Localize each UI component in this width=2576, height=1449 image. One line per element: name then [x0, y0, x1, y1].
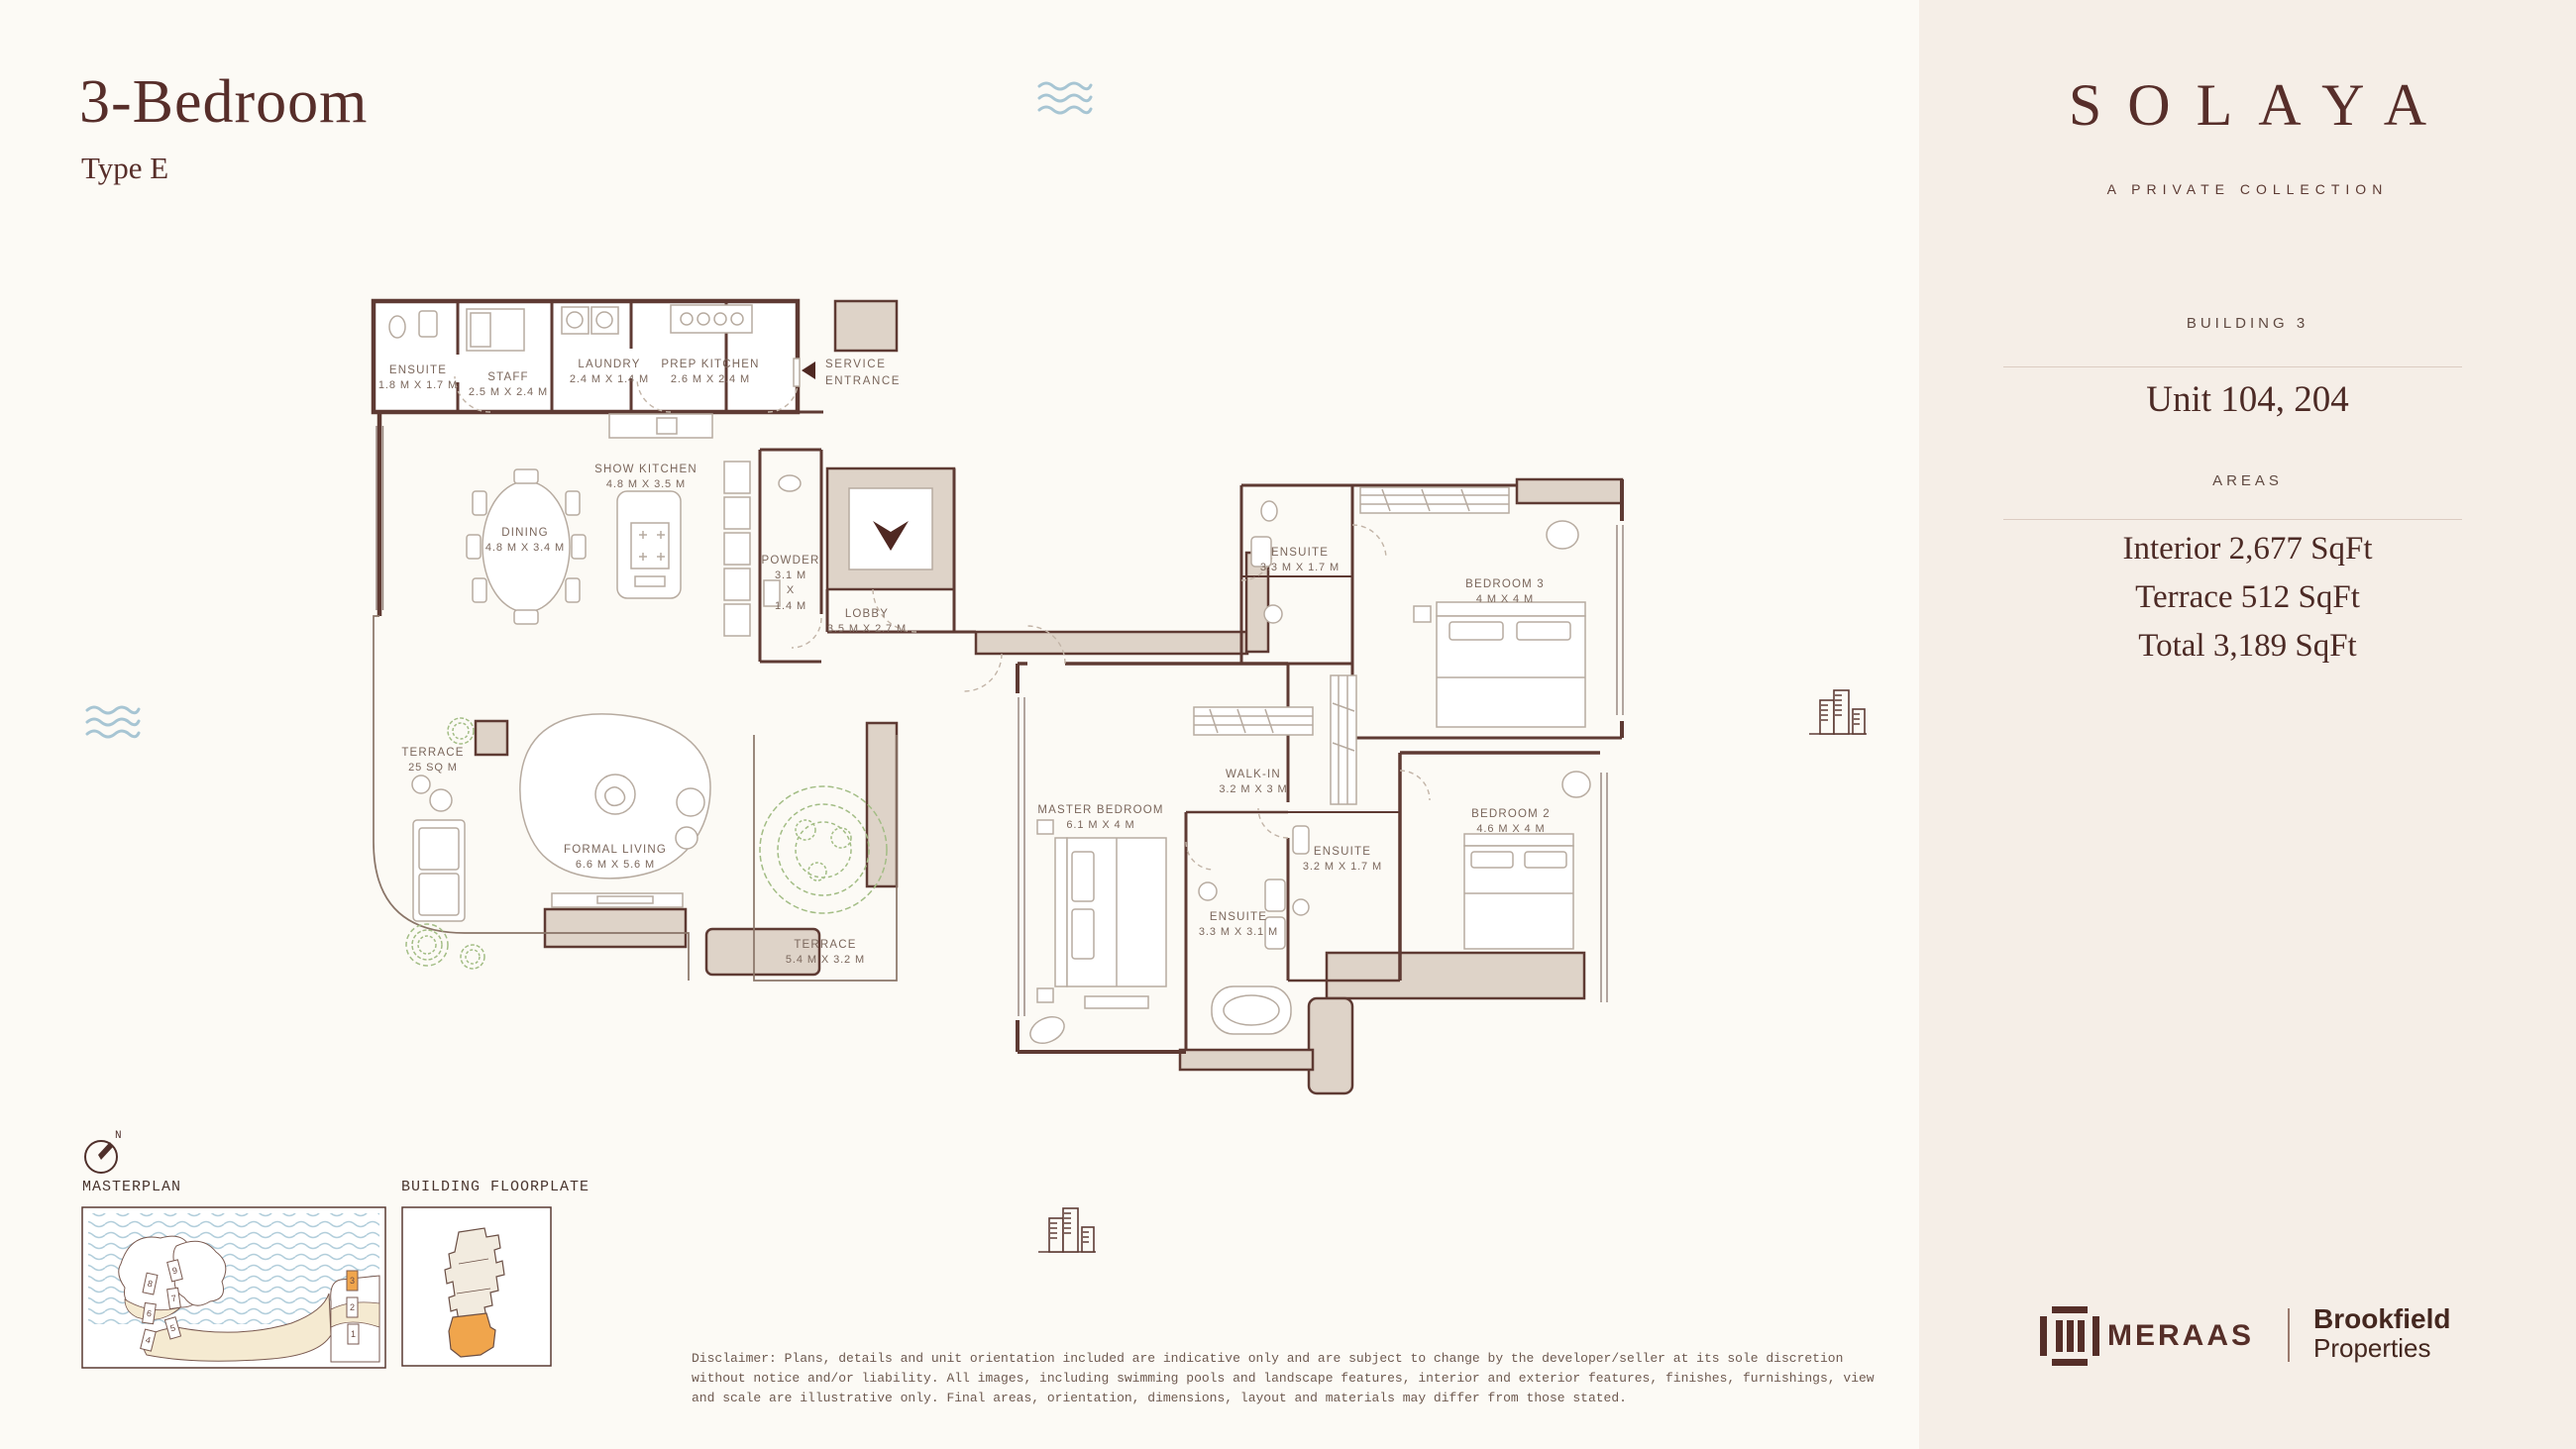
waves-icon [1035, 77, 1095, 117]
floorplate-thumbnail [401, 1206, 552, 1367]
room-label-ensuite-staff: ENSUITE 1.8 M X 1.7 M [378, 362, 458, 393]
room-label-terrace-left: TERRACE 25 SQ M [401, 745, 464, 776]
service-entrance-arrow-icon [802, 362, 815, 379]
waves-icon [80, 701, 146, 741]
svg-text:2: 2 [350, 1302, 355, 1312]
room-label-powder: POWDER 3.1 M X 1.4 M [762, 553, 820, 614]
room-label-master-ensuite: ENSUITE 3.3 M X 3.1 M [1199, 909, 1278, 940]
svg-text:1: 1 [351, 1329, 356, 1339]
room-label-ensuite-bed2: ENSUITE 3.2 M X 1.7 M [1303, 844, 1382, 875]
brochure-page: 3-Bedroom Type E [0, 0, 2576, 1449]
room-label-terrace-center: TERRACE 5.4 M X 3.2 M [786, 937, 865, 968]
area-total: Total 3,189 SqFt [1919, 628, 2576, 665]
masterplan-building: 7 [167, 1288, 181, 1308]
floorplate-label: BUILDING FLOORPLATE [401, 1179, 590, 1195]
sidebar: SOLAYA A PRIVATE COLLECTION BUILDING 3 U… [1919, 0, 2576, 1449]
meraas-logo-icon [2040, 1306, 2099, 1366]
room-label-formal-living: FORMAL LIVING 6.6 M X 5.6 M [564, 842, 667, 873]
meraas-wordmark: MERAAS [2107, 1319, 2254, 1353]
room-label-bedroom2: BEDROOM 2 4.6 M X 4 M [1471, 806, 1551, 837]
divider [2003, 519, 2462, 520]
page-title: 3-Bedroom [79, 67, 368, 138]
logo-divider [2288, 1308, 2290, 1362]
room-label-lobby: LOBBY 3.5 M X 2.7 M [827, 606, 907, 637]
service-entrance-label: SERVICE ENTRANCE [825, 357, 901, 391]
masterplan-thumbnail: 8 9 6 7 4 5 3 2 [81, 1206, 386, 1369]
svg-text:N: N [115, 1130, 122, 1142]
area-terrace: Terrace 512 SqFt [1919, 579, 2576, 616]
divider [2003, 366, 2462, 367]
skyline-icon [1807, 685, 1869, 739]
building-label: BUILDING 3 [1919, 315, 2576, 332]
floorplan: ENSUITE 1.8 M X 1.7 M STAFF 2.5 M X 2.4 … [362, 287, 1669, 1099]
room-label-ensuite-bed3: ENSUITE 3.3 M X 1.7 M [1260, 545, 1340, 575]
room-label-walk-in: WALK-IN 3.2 M X 3 M [1219, 767, 1287, 797]
room-label-laundry: LAUNDRY 2.4 M X 1.4 M [570, 357, 649, 387]
brookfield-logo: Brookfield Properties [2313, 1303, 2450, 1363]
masterplan-building: 1 [348, 1324, 359, 1344]
svg-text:3: 3 [350, 1276, 355, 1286]
room-label-show-kitchen: SHOW KITCHEN 4.8 M X 3.5 M [594, 462, 698, 492]
page-subtitle: Type E [81, 151, 168, 186]
masterplan-building-highlighted: 3 [347, 1271, 358, 1291]
masterplan-label: MASTERPLAN [82, 1179, 181, 1195]
floorplate-highlight [449, 1313, 495, 1357]
skyline-icon [1036, 1202, 1098, 1258]
brand-logo: SOLAYA [1919, 71, 2576, 140]
room-label-dining: DINING 4.8 M X 3.4 M [485, 525, 565, 556]
brand-tagline: A PRIVATE COLLECTION [1919, 181, 2576, 197]
compass-icon: N [77, 1125, 147, 1183]
areas-label: AREAS [1919, 472, 2576, 489]
disclaimer-text: Disclaimer: Plans, details and unit orie… [692, 1349, 1880, 1408]
room-label-prep-kitchen: PREP KITCHEN 2.6 M X 2.4 M [661, 357, 759, 387]
room-label-master-bedroom: MASTER BEDROOM 6.1 M X 4 M [1037, 802, 1163, 833]
area-interior: Interior 2,677 SqFt [1919, 531, 2576, 568]
masterplan-building: 6 [143, 1302, 157, 1323]
masterplan-building: 2 [347, 1297, 358, 1317]
room-label-bedroom3: BEDROOM 3 4 M X 4 M [1465, 576, 1545, 607]
room-label-staff: STAFF 2.5 M X 2.4 M [469, 369, 548, 400]
floorplan-drawing [362, 287, 1669, 1099]
unit-label: Unit 104, 204 [1919, 378, 2576, 421]
